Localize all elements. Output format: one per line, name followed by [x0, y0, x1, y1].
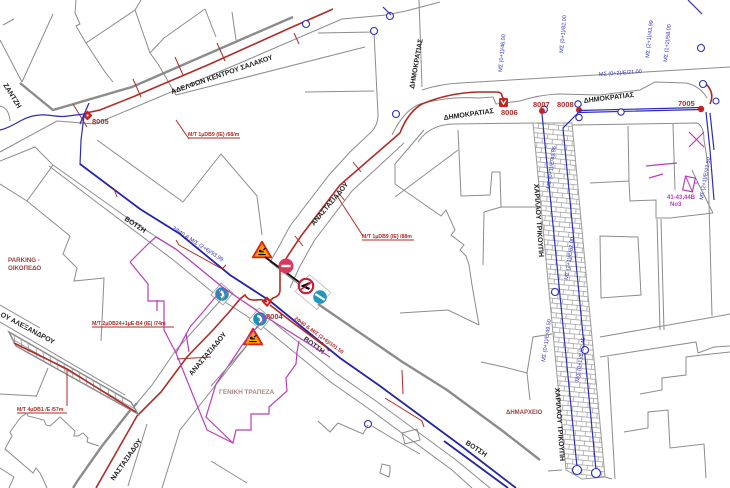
svg-text:8006: 8006 [501, 108, 518, 117]
svg-text:ΟΙΚΟΠΕΔΟ: ΟΙΚΟΠΕΔΟ [8, 265, 41, 272]
svg-text:8008: 8008 [557, 100, 574, 109]
svg-text:ΓΕΝΙΚΗ ΤΡΑΠΕΖΑ: ΓΕΝΙΚΗ ΤΡΑΠΕΖΑ [219, 389, 275, 396]
svg-text:Μ/Τ 2μDB24+1μΕ-Β4 (ΙΕ) /74m: Μ/Τ 2μDB24+1μΕ-Β4 (ΙΕ) /74m [92, 321, 166, 327]
svg-text:Μ/Τ 4μDB1 /Ε /57m: Μ/Τ 4μDB1 /Ε /57m [17, 407, 64, 413]
svg-text:8005: 8005 [92, 117, 109, 126]
svg-text:Μ/Τ 1μDB9 (ΙΕ) /68/m: Μ/Τ 1μDB9 (ΙΕ) /68/m [188, 132, 240, 138]
svg-text:Μ/Τ 1μDB9 (ΙΕ) /88m: Μ/Τ 1μDB9 (ΙΕ) /88m [362, 234, 412, 240]
svg-text:8007: 8007 [533, 100, 550, 109]
svg-text:41-43,44Β: 41-43,44Β [667, 195, 696, 201]
svg-text:PARKING -: PARKING - [8, 257, 40, 264]
svg-text:ΔΗΜΑΡΧΕΙΟ: ΔΗΜΑΡΧΕΙΟ [506, 410, 543, 416]
svg-text:7005: 7005 [678, 99, 695, 108]
svg-text:Νο3: Νο3 [670, 202, 682, 208]
